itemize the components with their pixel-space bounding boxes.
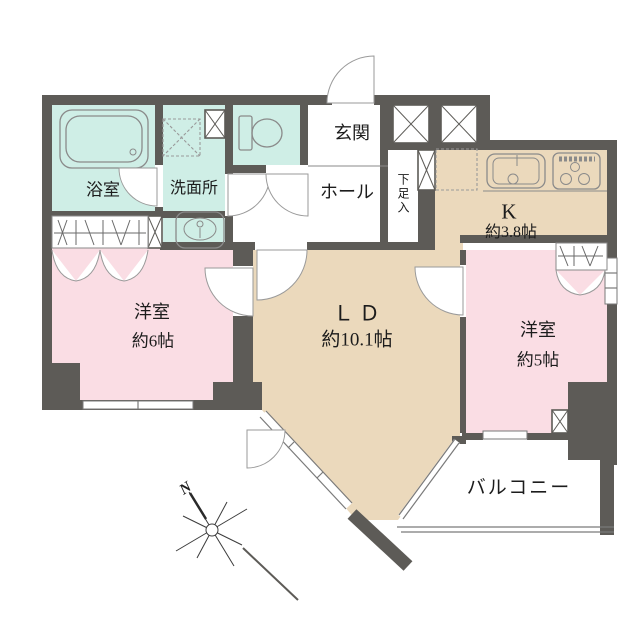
kitchen-label: K [501,202,516,223]
pillar-x-icon [205,110,225,138]
diagonal-wall-stub [352,514,408,566]
hall-label: ホール [320,183,374,201]
bedroom-right-balcony-window [483,431,527,439]
entrance-door [327,56,374,103]
boundary-diagonal-line [243,548,298,600]
compass-icon [176,492,247,566]
entrance-label: 玄関 [334,124,370,142]
balcony-label: バルコニー [467,479,572,498]
kitchen-size-label: 約3.8帖 [485,225,537,241]
bedroom-right-label: 洋室 [520,321,556,339]
bath-label: 浴室 [86,182,120,199]
pillar-x-icon [441,105,477,143]
toilet-room [233,105,300,165]
living-dining-label: ＬＤ [333,304,385,325]
floor-plan: 浴室 洗面所 玄関 ホール 下足入 K 約3.8帖 洋室 約6帖 ＬＤ 約10.… [0,0,640,640]
pillar-x-icon [552,410,568,433]
shoe-storage-label: 下足入 [397,173,409,215]
pillar-x-icon [148,216,162,248]
bedroom-right-size-label: 約5帖 [517,352,560,369]
balcony-railing [397,527,614,532]
kitchen-ld-passage [433,238,463,252]
pillar-x-icon [418,150,435,190]
living-dining-size-label: 約10.1帖 [321,331,392,350]
ld-balcony-door [247,430,285,468]
bedroom-left-label: 洋室 [134,303,170,321]
pillar-x-icon [393,105,429,143]
bedroom-left-size-label: 約6帖 [132,333,175,350]
washroom-label: 洗面所 [170,181,218,197]
